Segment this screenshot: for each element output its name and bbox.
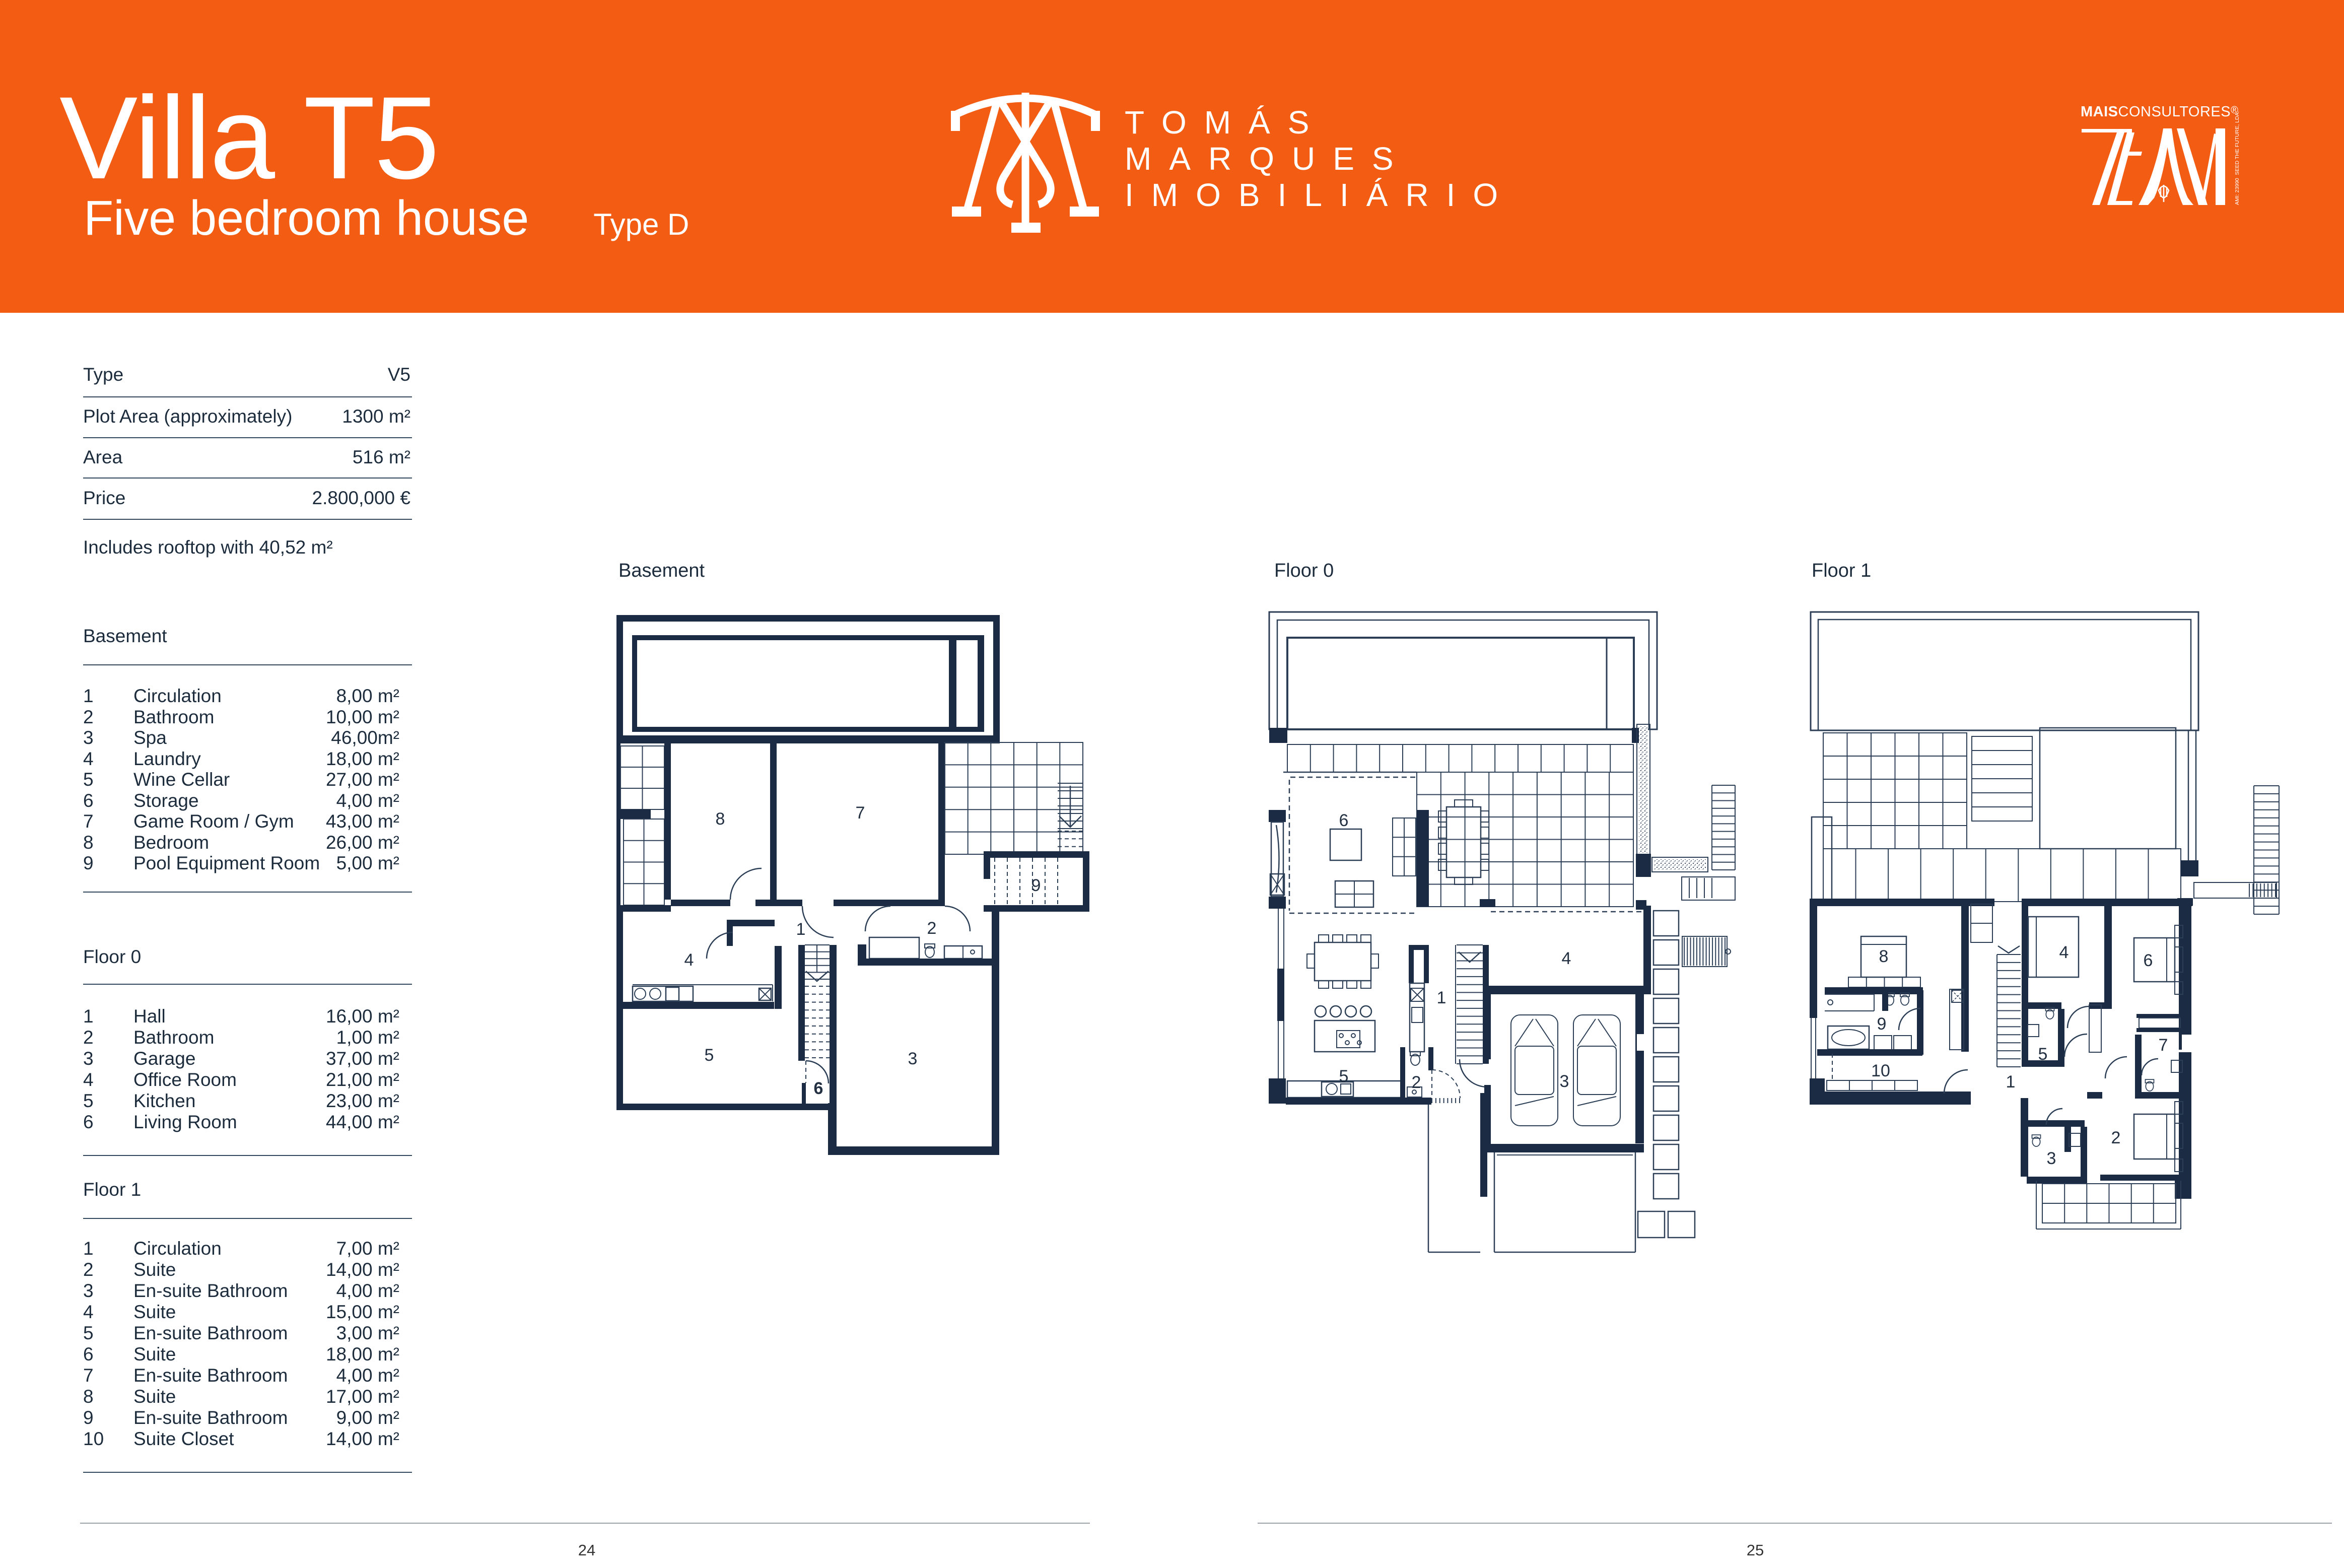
svg-text:1: 1 (2006, 1072, 2016, 1092)
svg-text:8: 8 (1879, 947, 1889, 966)
svg-text:2: 2 (2111, 1128, 2121, 1147)
svg-text:10: 10 (1871, 1061, 1890, 1080)
svg-text:1: 1 (796, 920, 806, 939)
svg-text:7: 7 (856, 803, 865, 823)
svg-text:7: 7 (2159, 1036, 2168, 1055)
svg-text:4: 4 (2059, 943, 2069, 962)
svg-text:4: 4 (684, 950, 694, 970)
svg-text:3: 3 (2047, 1149, 2056, 1168)
svg-text:8: 8 (716, 809, 725, 829)
svg-text:6: 6 (2144, 951, 2153, 970)
svg-text:1: 1 (1437, 988, 1446, 1007)
svg-text:9: 9 (1877, 1014, 1887, 1034)
svg-text:4: 4 (1562, 949, 1571, 968)
svg-text:3: 3 (908, 1049, 918, 1068)
svg-text:3: 3 (1560, 1072, 1569, 1091)
svg-text:5: 5 (1339, 1067, 1349, 1086)
svg-text:9: 9 (1031, 876, 1041, 895)
svg-text:6: 6 (1339, 811, 1349, 830)
svg-text:2: 2 (1412, 1073, 1421, 1092)
svg-text:5: 5 (705, 1046, 714, 1065)
svg-text:2: 2 (927, 919, 937, 938)
svg-text:6: 6 (814, 1079, 823, 1098)
svg-text:5: 5 (2038, 1045, 2048, 1064)
